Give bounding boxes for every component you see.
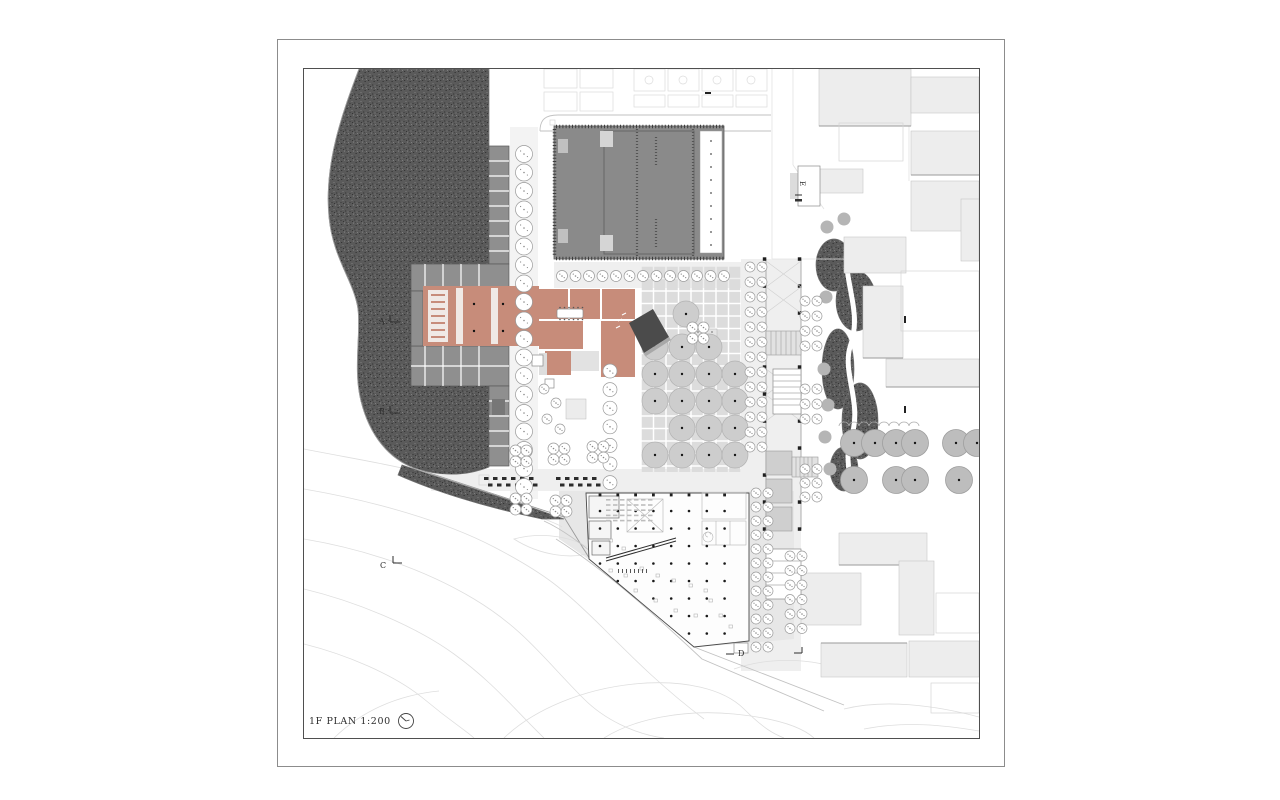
terracotta-plaza (532, 289, 635, 434)
south-building (586, 493, 749, 653)
plan-title: 1F PLAN 1:200 (309, 716, 391, 727)
section-marker-c: C (380, 561, 386, 570)
big-trees-east (841, 430, 980, 494)
title-block: 1F PLAN 1:200 (309, 712, 415, 730)
central-plaza (641, 266, 748, 472)
auditorium-building (554, 126, 724, 259)
lawn-trees (539, 384, 565, 434)
section-marker-d: D (738, 649, 744, 658)
section-marker-a: A (378, 317, 385, 326)
section-marker-b: B (379, 407, 385, 416)
north-clock-icon (397, 712, 415, 730)
site-plan-drawing: A B C D E (304, 69, 979, 738)
drawing-sheet: A B C D E 1F PLAN 1:200 (0, 0, 1280, 800)
section-marker-e: E (798, 181, 806, 186)
drawing-outer-border: A B C D E 1F PLAN 1:200 (277, 39, 1005, 767)
drawing-inner-border: A B C D E (303, 68, 980, 739)
